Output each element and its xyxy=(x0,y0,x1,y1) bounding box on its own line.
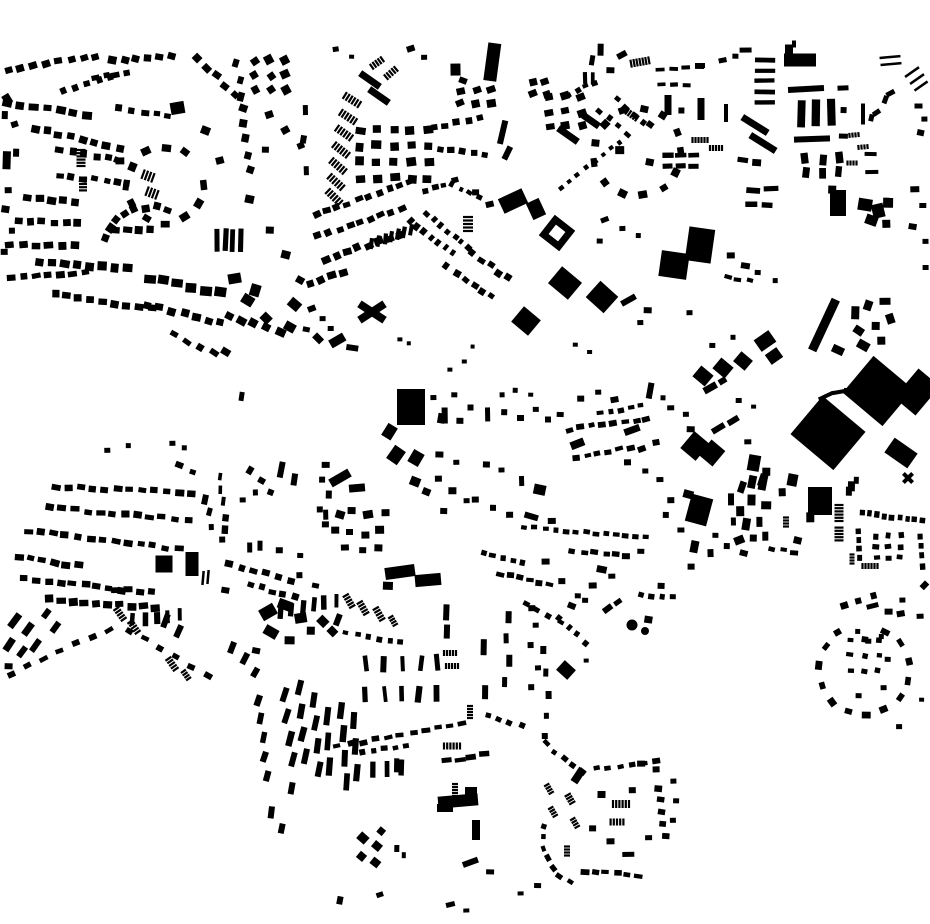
building-terrace-stripe xyxy=(564,848,570,850)
building xyxy=(297,553,303,558)
building xyxy=(580,869,589,875)
building xyxy=(415,686,423,703)
building xyxy=(80,54,89,62)
building xyxy=(688,164,698,169)
building-terrace-stripe xyxy=(876,563,878,569)
building xyxy=(20,575,28,581)
building xyxy=(278,823,286,834)
building xyxy=(827,99,836,126)
building xyxy=(2,111,8,119)
building xyxy=(153,202,162,211)
building xyxy=(288,782,296,795)
building xyxy=(453,269,462,278)
building xyxy=(905,677,912,686)
building-terrace-stripe xyxy=(452,783,458,785)
building xyxy=(737,481,747,494)
building xyxy=(541,845,547,852)
building xyxy=(741,518,751,531)
building xyxy=(528,393,533,397)
building xyxy=(97,261,107,270)
building xyxy=(718,376,728,385)
building-terrace-stripe xyxy=(457,663,459,669)
building xyxy=(214,286,227,297)
building xyxy=(398,759,404,775)
building xyxy=(307,304,317,312)
building xyxy=(476,114,484,121)
building xyxy=(274,573,282,581)
building xyxy=(566,624,573,631)
building xyxy=(846,652,854,657)
building xyxy=(61,561,71,569)
building xyxy=(911,516,917,522)
building xyxy=(163,206,172,214)
building xyxy=(5,663,13,669)
building-terrace-stripe xyxy=(79,183,87,185)
building xyxy=(267,488,275,496)
building xyxy=(259,311,272,324)
building xyxy=(287,297,303,312)
building xyxy=(101,233,110,242)
building xyxy=(896,610,905,617)
building xyxy=(250,667,260,679)
building xyxy=(637,761,645,767)
building xyxy=(105,154,113,161)
building xyxy=(501,409,507,415)
building xyxy=(544,109,554,117)
building xyxy=(919,580,929,590)
building xyxy=(637,549,644,554)
building-terrace-stripe xyxy=(463,226,473,228)
building xyxy=(465,754,476,761)
building xyxy=(141,110,149,117)
building xyxy=(263,770,272,782)
building xyxy=(442,407,448,423)
building xyxy=(917,614,924,619)
building xyxy=(477,287,486,296)
building-terrace-stripe xyxy=(610,819,612,826)
building xyxy=(280,687,290,703)
building xyxy=(633,418,641,424)
building xyxy=(557,412,564,417)
building xyxy=(629,762,636,768)
building xyxy=(110,300,119,309)
building xyxy=(155,644,164,653)
building xyxy=(57,504,67,511)
building xyxy=(919,517,925,523)
building xyxy=(613,598,622,607)
building xyxy=(277,461,286,478)
building xyxy=(510,558,516,564)
building xyxy=(533,407,539,412)
building xyxy=(657,796,665,802)
building xyxy=(92,600,100,608)
building xyxy=(268,806,275,819)
building xyxy=(563,529,570,535)
building xyxy=(877,653,883,658)
building xyxy=(808,487,832,515)
building xyxy=(222,514,229,522)
building xyxy=(44,126,52,134)
building xyxy=(406,216,415,225)
building-terrace-stripe xyxy=(783,519,789,521)
building xyxy=(867,510,872,517)
building xyxy=(614,95,621,102)
building xyxy=(386,209,394,217)
building-terrace-stripe xyxy=(851,133,854,138)
building xyxy=(170,101,186,115)
building xyxy=(584,659,589,663)
building xyxy=(733,351,753,371)
building xyxy=(917,534,922,540)
building xyxy=(914,103,922,108)
building xyxy=(333,613,343,626)
building xyxy=(203,671,213,680)
building xyxy=(71,198,79,206)
building xyxy=(312,332,324,344)
building xyxy=(779,488,786,496)
building xyxy=(268,589,276,595)
building xyxy=(923,265,929,270)
building xyxy=(865,152,877,156)
building xyxy=(78,135,88,145)
building xyxy=(754,78,774,83)
building xyxy=(355,218,364,226)
building xyxy=(116,144,125,153)
building xyxy=(608,409,614,415)
building xyxy=(590,549,599,555)
building xyxy=(545,582,553,588)
building xyxy=(542,559,550,565)
building xyxy=(67,271,77,278)
building xyxy=(606,838,614,844)
building xyxy=(431,124,438,131)
building xyxy=(7,612,22,629)
building xyxy=(603,551,610,556)
building xyxy=(355,156,364,165)
building-terrace-stripe xyxy=(77,149,86,151)
building xyxy=(908,223,917,230)
building xyxy=(653,766,660,772)
building xyxy=(511,306,541,335)
building xyxy=(134,226,142,234)
building xyxy=(361,532,369,539)
building xyxy=(260,751,269,763)
building xyxy=(481,152,488,158)
building xyxy=(56,598,66,604)
building xyxy=(126,443,131,448)
building-terrace-stripe xyxy=(625,800,627,808)
building xyxy=(835,151,844,163)
building xyxy=(519,476,524,486)
building xyxy=(872,322,880,330)
building xyxy=(549,864,557,873)
building xyxy=(35,258,44,267)
building xyxy=(423,210,431,218)
building xyxy=(865,170,878,174)
building-terrace-stripe xyxy=(873,563,875,569)
building xyxy=(497,120,508,145)
building xyxy=(445,901,455,908)
building xyxy=(15,217,23,224)
building-terrace-stripe xyxy=(855,161,857,166)
building xyxy=(560,107,569,115)
building xyxy=(373,125,381,133)
building xyxy=(518,722,526,730)
building xyxy=(185,283,196,293)
building xyxy=(322,462,330,468)
building-terrace-stripe xyxy=(721,145,723,151)
building xyxy=(128,107,135,114)
building xyxy=(459,187,464,193)
building xyxy=(447,368,452,372)
building xyxy=(533,623,539,628)
building xyxy=(712,533,718,538)
building xyxy=(390,142,399,151)
building xyxy=(409,476,422,488)
building xyxy=(483,42,501,81)
building xyxy=(31,272,41,279)
building xyxy=(28,61,38,70)
building xyxy=(263,54,275,66)
building xyxy=(828,185,836,193)
building xyxy=(546,691,552,699)
building xyxy=(604,765,611,771)
building xyxy=(543,669,548,677)
building xyxy=(493,268,503,278)
building xyxy=(592,531,599,536)
building xyxy=(227,272,242,284)
building xyxy=(323,228,332,237)
building xyxy=(746,187,760,194)
building-terrace-stripe xyxy=(857,145,860,150)
building xyxy=(598,421,606,428)
building xyxy=(105,585,113,591)
building xyxy=(121,56,130,65)
building xyxy=(502,145,514,160)
building xyxy=(73,260,82,269)
building xyxy=(431,216,439,224)
building-terrace-stripe xyxy=(835,510,844,512)
building xyxy=(575,593,581,598)
building xyxy=(374,544,382,551)
building-terrace-stripe xyxy=(638,58,642,66)
building xyxy=(415,573,442,587)
building xyxy=(45,503,54,511)
building xyxy=(854,477,859,484)
building xyxy=(261,569,270,577)
building xyxy=(724,104,728,122)
building xyxy=(142,214,152,224)
building xyxy=(489,552,497,558)
building xyxy=(74,561,84,569)
building xyxy=(253,489,258,495)
building-footprint-map xyxy=(0,0,930,924)
building xyxy=(342,247,352,256)
building xyxy=(349,55,354,59)
building xyxy=(572,530,578,535)
building xyxy=(544,713,549,719)
building xyxy=(573,630,580,637)
building xyxy=(453,460,459,465)
building xyxy=(840,601,849,610)
building xyxy=(371,140,382,149)
building xyxy=(540,77,550,86)
building xyxy=(898,532,904,538)
building xyxy=(4,66,13,74)
building xyxy=(877,337,885,345)
building xyxy=(481,550,488,557)
building xyxy=(111,538,121,545)
building xyxy=(578,121,588,131)
building-terrace-stripe xyxy=(863,144,866,149)
building xyxy=(186,663,195,671)
building xyxy=(885,657,891,662)
building xyxy=(659,183,668,192)
building xyxy=(662,833,670,839)
building xyxy=(685,226,715,263)
building xyxy=(583,529,590,535)
building xyxy=(768,546,775,552)
building xyxy=(380,656,387,673)
building-terrace-stripe xyxy=(449,743,451,750)
building xyxy=(682,489,694,499)
building xyxy=(461,276,470,284)
building xyxy=(670,779,676,784)
building xyxy=(535,665,541,670)
building xyxy=(266,226,274,233)
building xyxy=(543,527,549,531)
building xyxy=(238,103,248,113)
building xyxy=(326,757,334,776)
building xyxy=(528,684,534,690)
building xyxy=(662,163,672,168)
building xyxy=(531,525,537,530)
building xyxy=(756,517,762,527)
building xyxy=(103,601,112,609)
building xyxy=(542,739,550,747)
building xyxy=(533,484,547,496)
building xyxy=(403,743,410,749)
building xyxy=(646,120,655,129)
building xyxy=(92,583,101,590)
building xyxy=(371,748,377,754)
building xyxy=(323,510,328,520)
building xyxy=(245,465,254,475)
building xyxy=(860,510,865,516)
building xyxy=(250,85,260,95)
building xyxy=(589,582,597,588)
building xyxy=(395,182,403,190)
building xyxy=(663,512,669,518)
building xyxy=(667,405,674,410)
building xyxy=(141,635,150,642)
building xyxy=(120,209,130,218)
building xyxy=(383,582,393,590)
building-terrace-stripe xyxy=(467,717,473,719)
building xyxy=(498,467,504,472)
building xyxy=(139,602,149,609)
building xyxy=(667,497,674,503)
building-terrace-stripe xyxy=(77,165,86,167)
building xyxy=(441,757,451,763)
building xyxy=(597,239,603,244)
building-terrace-stripe xyxy=(835,536,844,538)
building xyxy=(36,528,45,536)
building xyxy=(285,731,295,747)
building xyxy=(485,712,491,718)
building-terrace-stripe xyxy=(644,57,648,65)
building xyxy=(418,655,424,671)
building-terrace-stripe xyxy=(455,650,457,656)
building xyxy=(2,151,11,169)
building xyxy=(394,845,399,852)
building xyxy=(561,754,569,762)
building xyxy=(51,484,61,491)
building xyxy=(634,874,643,879)
building xyxy=(542,733,548,739)
building xyxy=(575,92,586,102)
building xyxy=(874,511,880,518)
building-terrace-stripe xyxy=(454,663,456,669)
building xyxy=(56,105,67,114)
building xyxy=(367,86,391,105)
building xyxy=(123,226,133,233)
building xyxy=(644,307,652,313)
building xyxy=(648,593,655,599)
building xyxy=(192,53,203,64)
building xyxy=(589,55,596,66)
building xyxy=(881,685,887,690)
building-terrace-stripe xyxy=(783,522,789,524)
building xyxy=(486,85,497,94)
building xyxy=(451,392,457,397)
building xyxy=(223,228,229,251)
building xyxy=(866,602,879,610)
building xyxy=(471,345,475,349)
building xyxy=(629,787,636,793)
building xyxy=(468,405,474,411)
building xyxy=(71,639,80,647)
building xyxy=(601,152,607,158)
building xyxy=(356,851,367,862)
building xyxy=(535,580,542,587)
building xyxy=(385,761,390,777)
building xyxy=(689,540,699,553)
building xyxy=(180,308,190,318)
building xyxy=(333,743,341,748)
building xyxy=(98,298,107,305)
building xyxy=(582,598,588,603)
building xyxy=(466,189,473,196)
building xyxy=(500,555,506,561)
building xyxy=(855,597,862,604)
building xyxy=(136,589,145,596)
building xyxy=(62,292,71,299)
building xyxy=(802,167,810,178)
building xyxy=(395,733,403,738)
building-terrace-stripe xyxy=(641,57,645,65)
building xyxy=(740,48,752,53)
building xyxy=(134,303,144,311)
building xyxy=(381,745,388,751)
building xyxy=(872,544,879,550)
building xyxy=(161,221,170,228)
building-terrace-stripe xyxy=(467,711,473,713)
building xyxy=(736,398,742,403)
building xyxy=(750,535,757,542)
building xyxy=(645,835,652,840)
building-terrace-stripe xyxy=(77,155,86,157)
